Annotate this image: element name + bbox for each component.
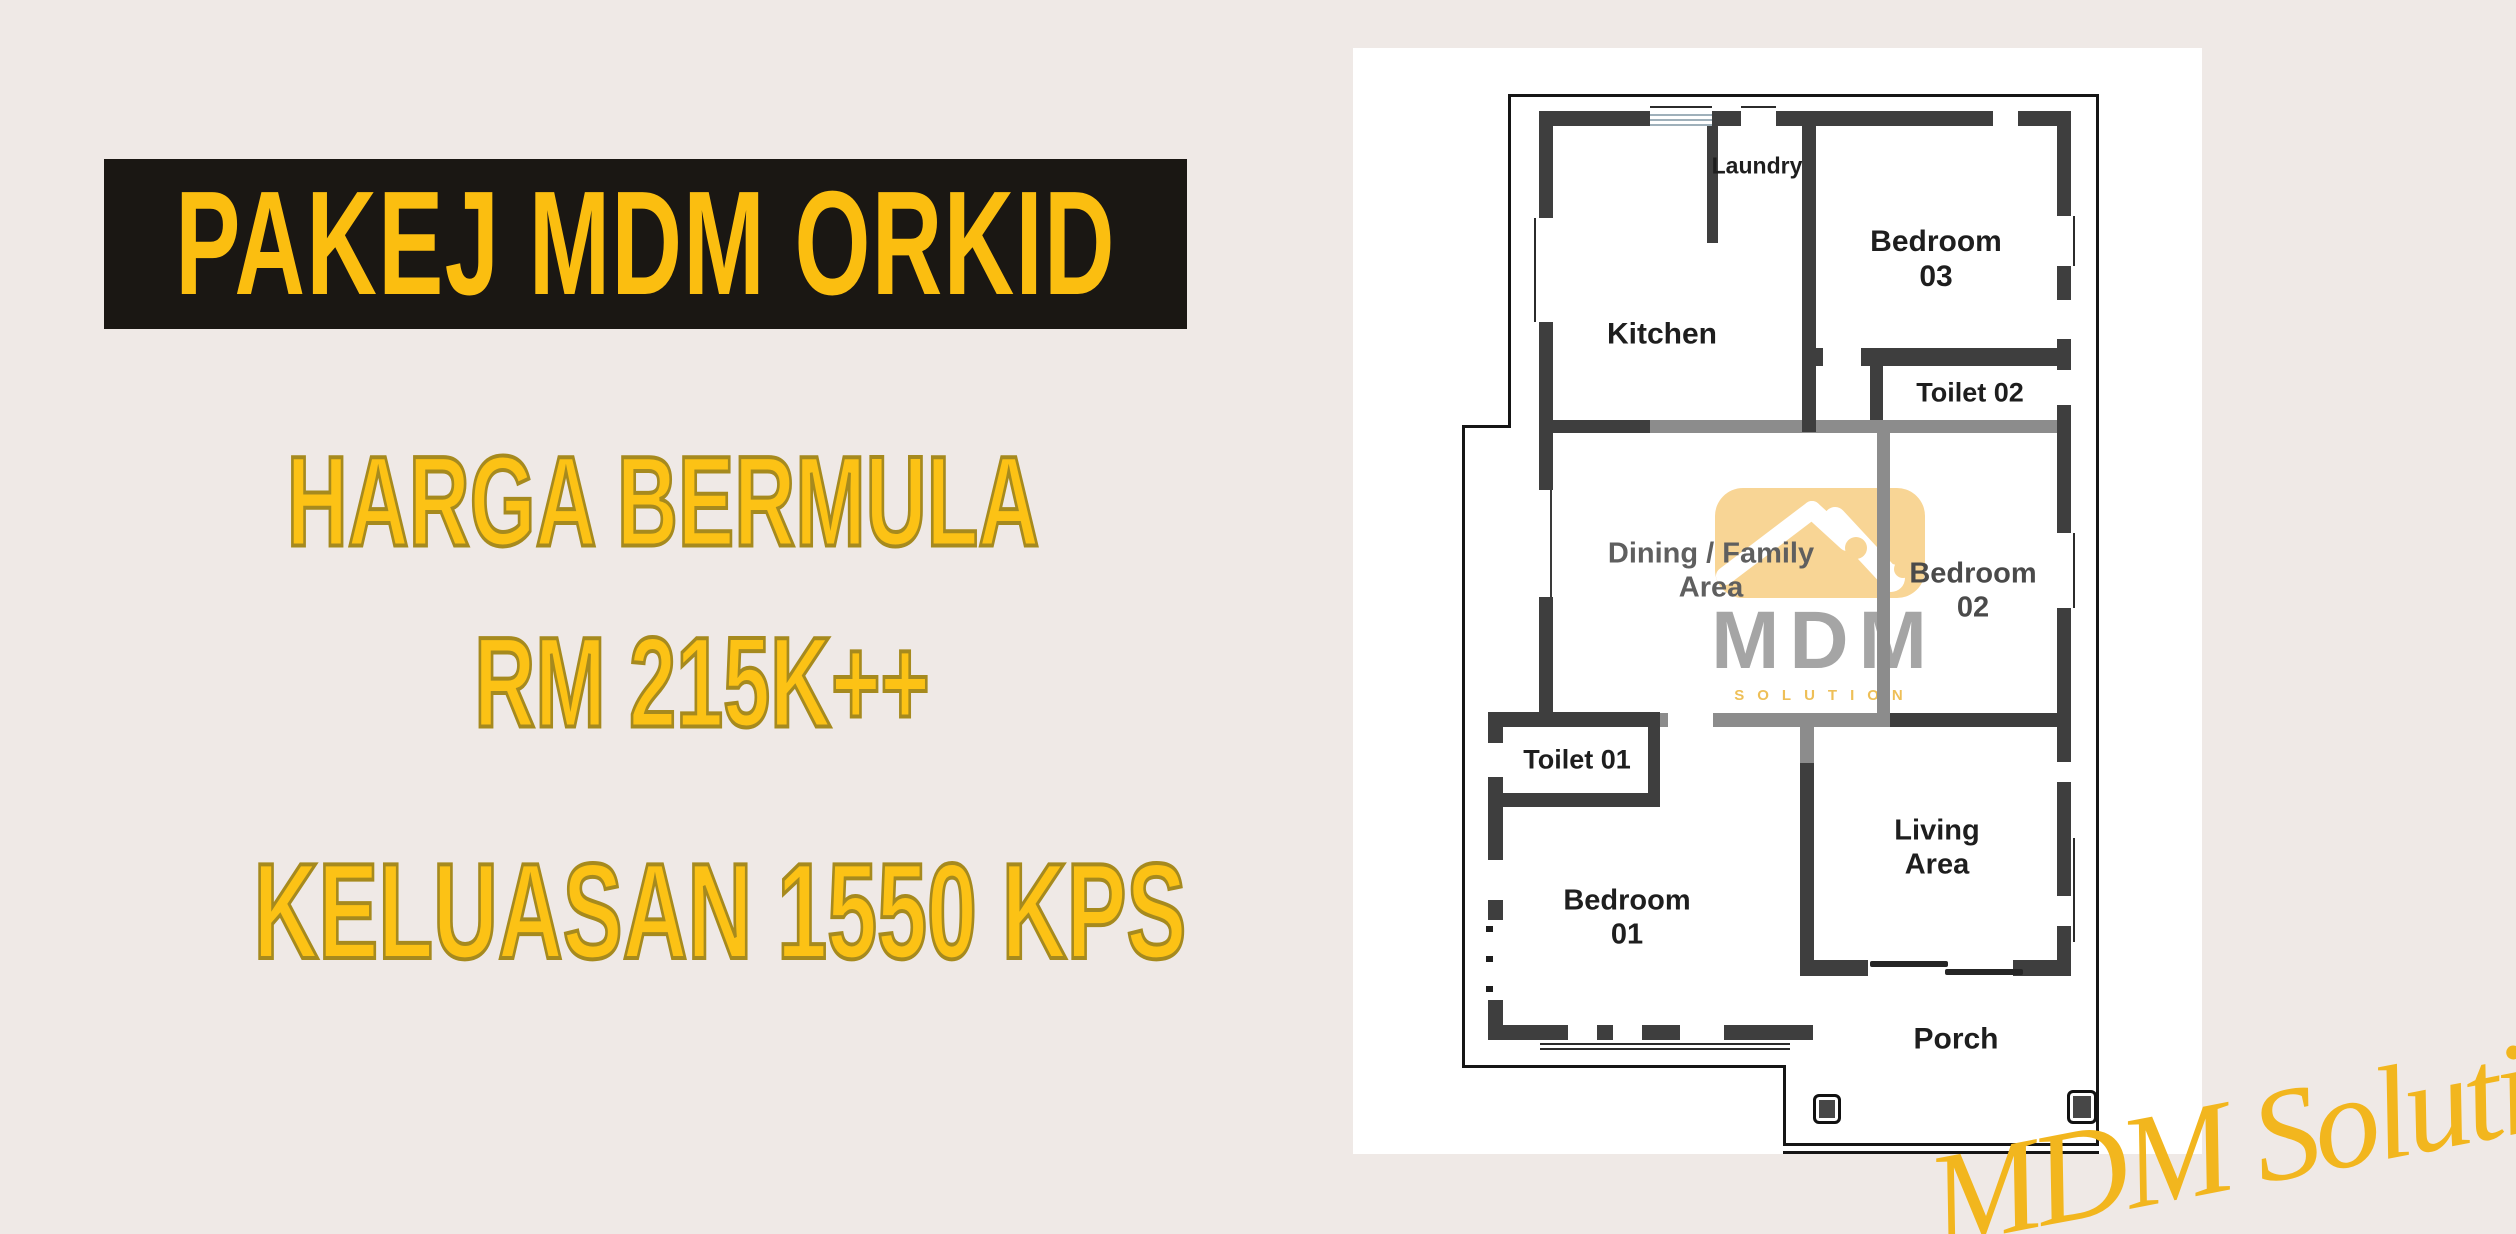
signature-text: MDM Solution <box>1915 991 2516 1234</box>
area-text: KELUASAN 1550 KPS <box>254 833 1187 989</box>
wall-laundry-partition <box>1707 126 1718 243</box>
outline-right <box>2096 94 2099 1146</box>
partition-living-left-top <box>1800 715 1814 763</box>
window-living-right-1 <box>2057 762 2071 782</box>
room-label-kitchen: Kitchen <box>1607 318 1717 353</box>
sill-laundry-top <box>1741 106 1776 108</box>
room-label-bedroom-02: Bedroom 02 <box>1909 557 2036 624</box>
price-value-text: RM 215K++ <box>474 610 929 757</box>
outline-left-upper <box>1508 94 1511 428</box>
outline-step-vertical <box>1783 1065 1786 1146</box>
mullion-tick-1 <box>1486 926 1493 932</box>
title-banner: PAKEJ MDM ORKID <box>104 159 1187 329</box>
sill-bedroom01-2 <box>1540 1048 1790 1050</box>
door-leaf-entrance <box>1550 490 1552 597</box>
wall-bedroom02-bottom <box>1890 713 2070 727</box>
room-label-toilet-01: Toilet 01 <box>1523 744 1631 775</box>
outline-top <box>1508 94 2099 97</box>
wall-toilet01-right <box>1648 712 1660 807</box>
porch-column-left <box>1813 1094 1841 1124</box>
signature-graphic: MDM Solution <box>1918 1012 2516 1234</box>
wall-living-left <box>1800 763 1814 976</box>
price-intro-text: HARGA BERMULA <box>287 429 1039 576</box>
door-bedroom03 <box>1823 348 1861 366</box>
room-label-bedroom-03: Bedroom 03 <box>1870 225 2002 295</box>
window-bedroom02-right <box>2057 533 2071 608</box>
window-bedroom01-left-1 <box>1488 860 1503 900</box>
window-toilet01-left <box>1488 743 1503 777</box>
sill-kitchen-top <box>1650 106 1712 108</box>
poster-page: { "page": { "bg": "#EFE9E6" }, "promo": … <box>0 0 2516 1234</box>
mullion-tick-2 <box>1486 956 1493 962</box>
window-toilet02-right <box>2057 370 2071 405</box>
wall-kitchen-bedroom03 <box>1802 126 1816 432</box>
wall-toilet02-left <box>1870 351 1883 420</box>
sliding-door-panel-2 <box>1945 969 2023 975</box>
outline-step-horizontal <box>1462 425 1511 428</box>
mullion-tick-3 <box>1486 986 1493 992</box>
outline-left-lower <box>1462 425 1465 1068</box>
window-bedroom01-bottom-1 <box>1568 1025 1597 1040</box>
wall-left-upper-exterior <box>1539 111 1553 717</box>
window-bedroom03-top <box>1993 111 2018 126</box>
wall-toilet01-bottom <box>1503 793 1660 807</box>
window-kitchen-top <box>1650 111 1712 126</box>
window-bedroom01-bottom-3 <box>1680 1025 1724 1040</box>
sill-bedroom03-right <box>2073 216 2075 266</box>
logo-subtitle-text: SOLUTION <box>1700 687 1950 704</box>
sill-living-right <box>2073 838 2075 942</box>
window-kitchen-left <box>1539 218 1553 322</box>
window-bedroom01-bottom-2 <box>1613 1025 1642 1040</box>
window-laundry-top <box>1741 111 1776 126</box>
wall-top-exterior <box>1539 111 2070 126</box>
sill-kitchen-left <box>1534 218 1536 322</box>
room-label-living-area: Living Area <box>1894 814 1979 881</box>
room-label-laundry: Laundry <box>1712 153 1803 180</box>
sill-bedroom01-1 <box>1540 1043 1790 1045</box>
room-label-toilet-02: Toilet 02 <box>1916 377 2024 408</box>
room-label-bedroom-01: Bedroom 01 <box>1563 884 1690 951</box>
room-label-dining-family: Dining / Family Area <box>1608 537 1814 604</box>
window-bedroom03-right-1 <box>2057 216 2071 266</box>
sliding-door-panel-1 <box>1870 961 1948 967</box>
door-hall-bedroom01 <box>1668 713 1713 727</box>
sill-bedroom02-right <box>2073 533 2075 608</box>
wall-toilet01-top <box>1488 712 1660 727</box>
floorplan-panel: MDM SOLUTION Laundry Kitchen Bedroom 03 … <box>1353 48 2202 1154</box>
package-title: PAKEJ MDM ORKID <box>175 159 1116 329</box>
wall-kitchen-dining-dark <box>1539 420 1650 433</box>
window-bedroom03-right-2 <box>2057 300 2071 339</box>
outline-bottom-left <box>1462 1065 1786 1068</box>
window-living-right-2 <box>2057 896 2071 926</box>
wall-bedroom01-bottom <box>1503 1025 1813 1040</box>
partition-bedroom02-left <box>1877 433 1890 713</box>
partition-kitchen-dining <box>1650 420 2070 433</box>
